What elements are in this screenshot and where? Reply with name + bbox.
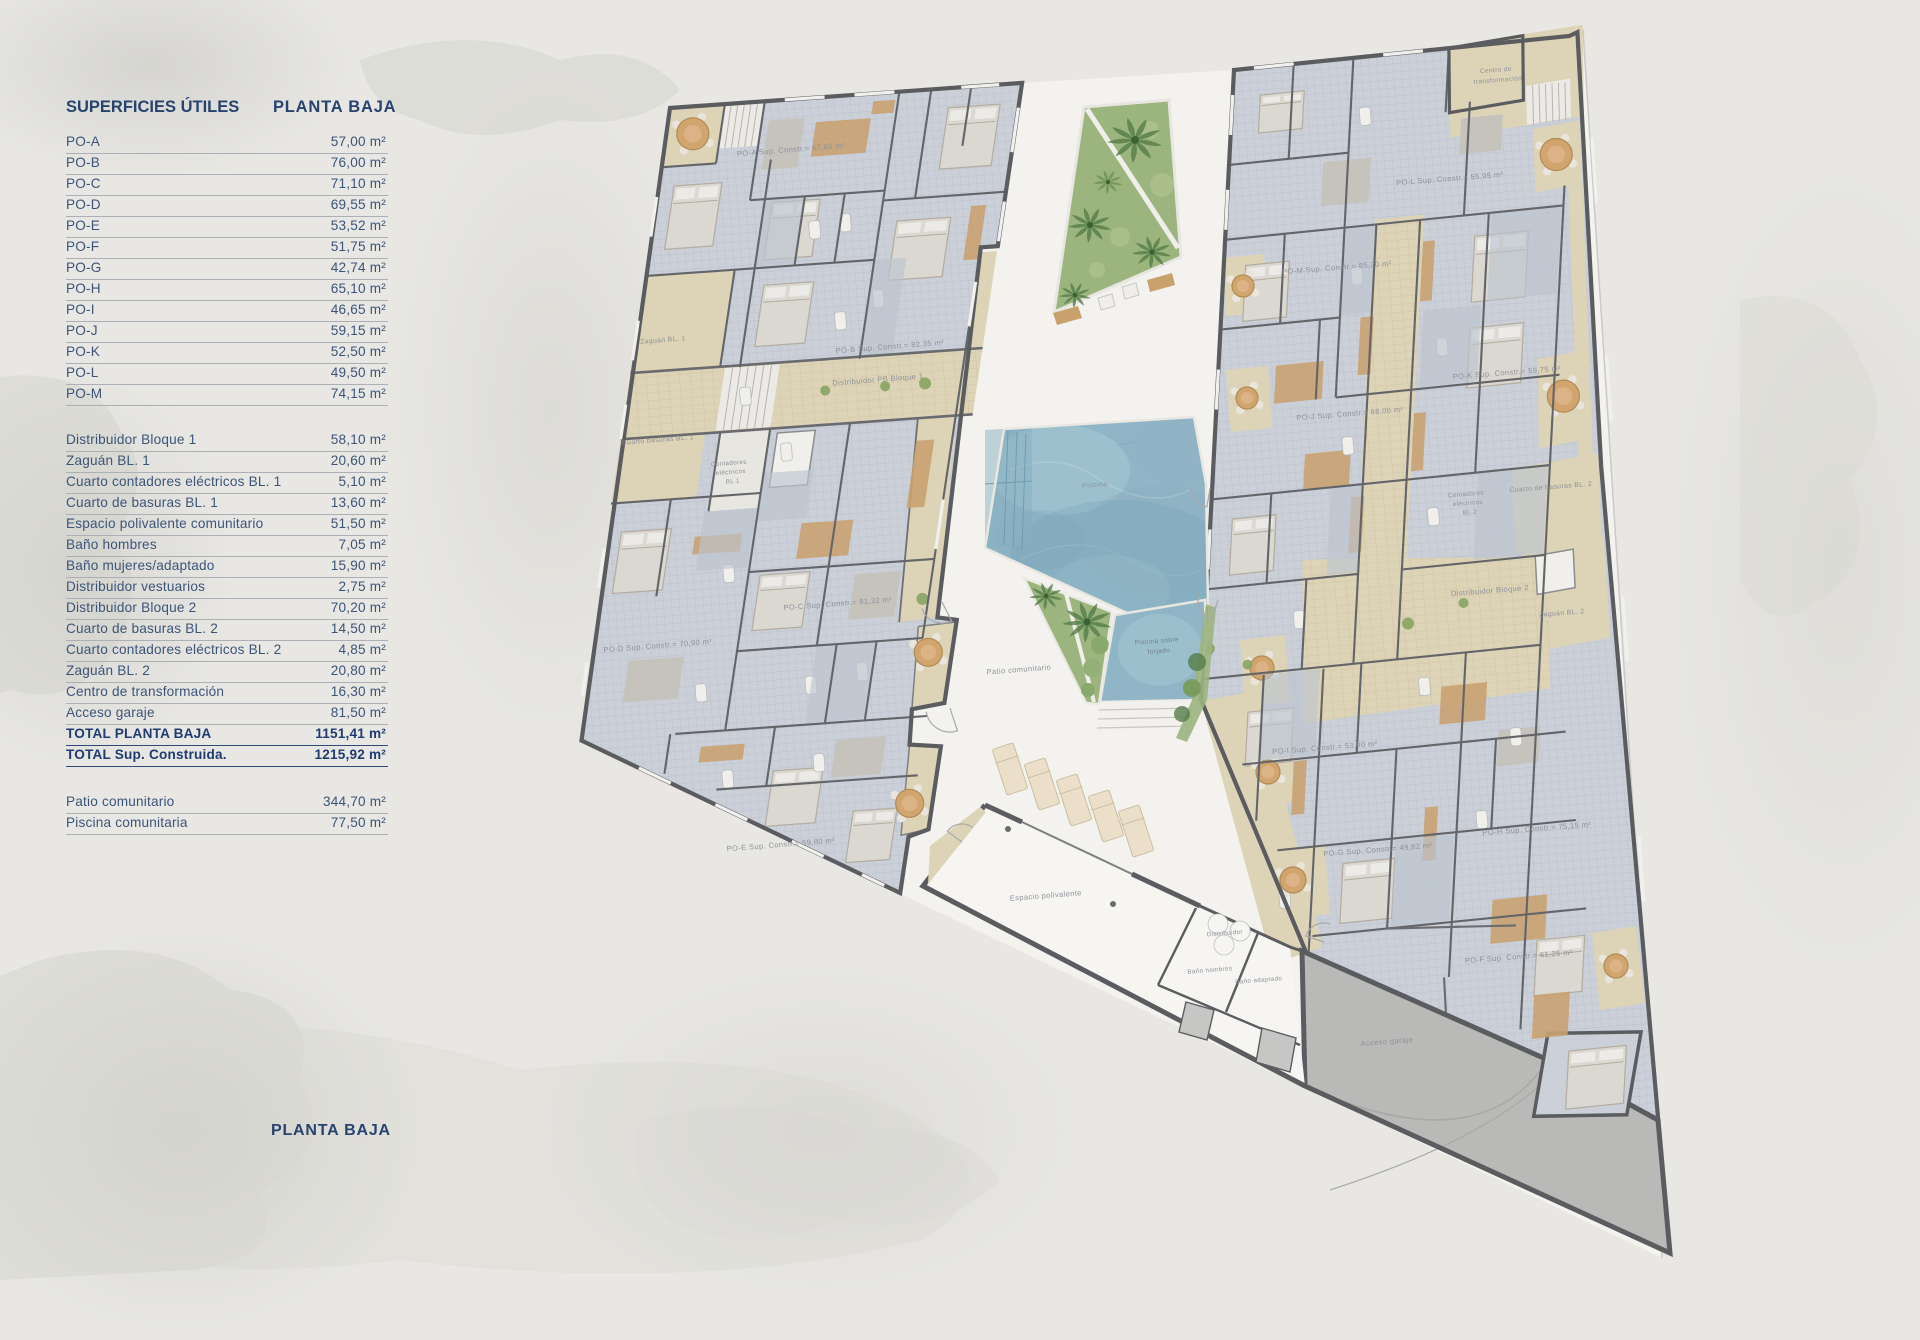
- svg-text:BL 1: BL 1: [726, 477, 741, 485]
- svg-text:BL.2: BL.2: [1462, 508, 1477, 516]
